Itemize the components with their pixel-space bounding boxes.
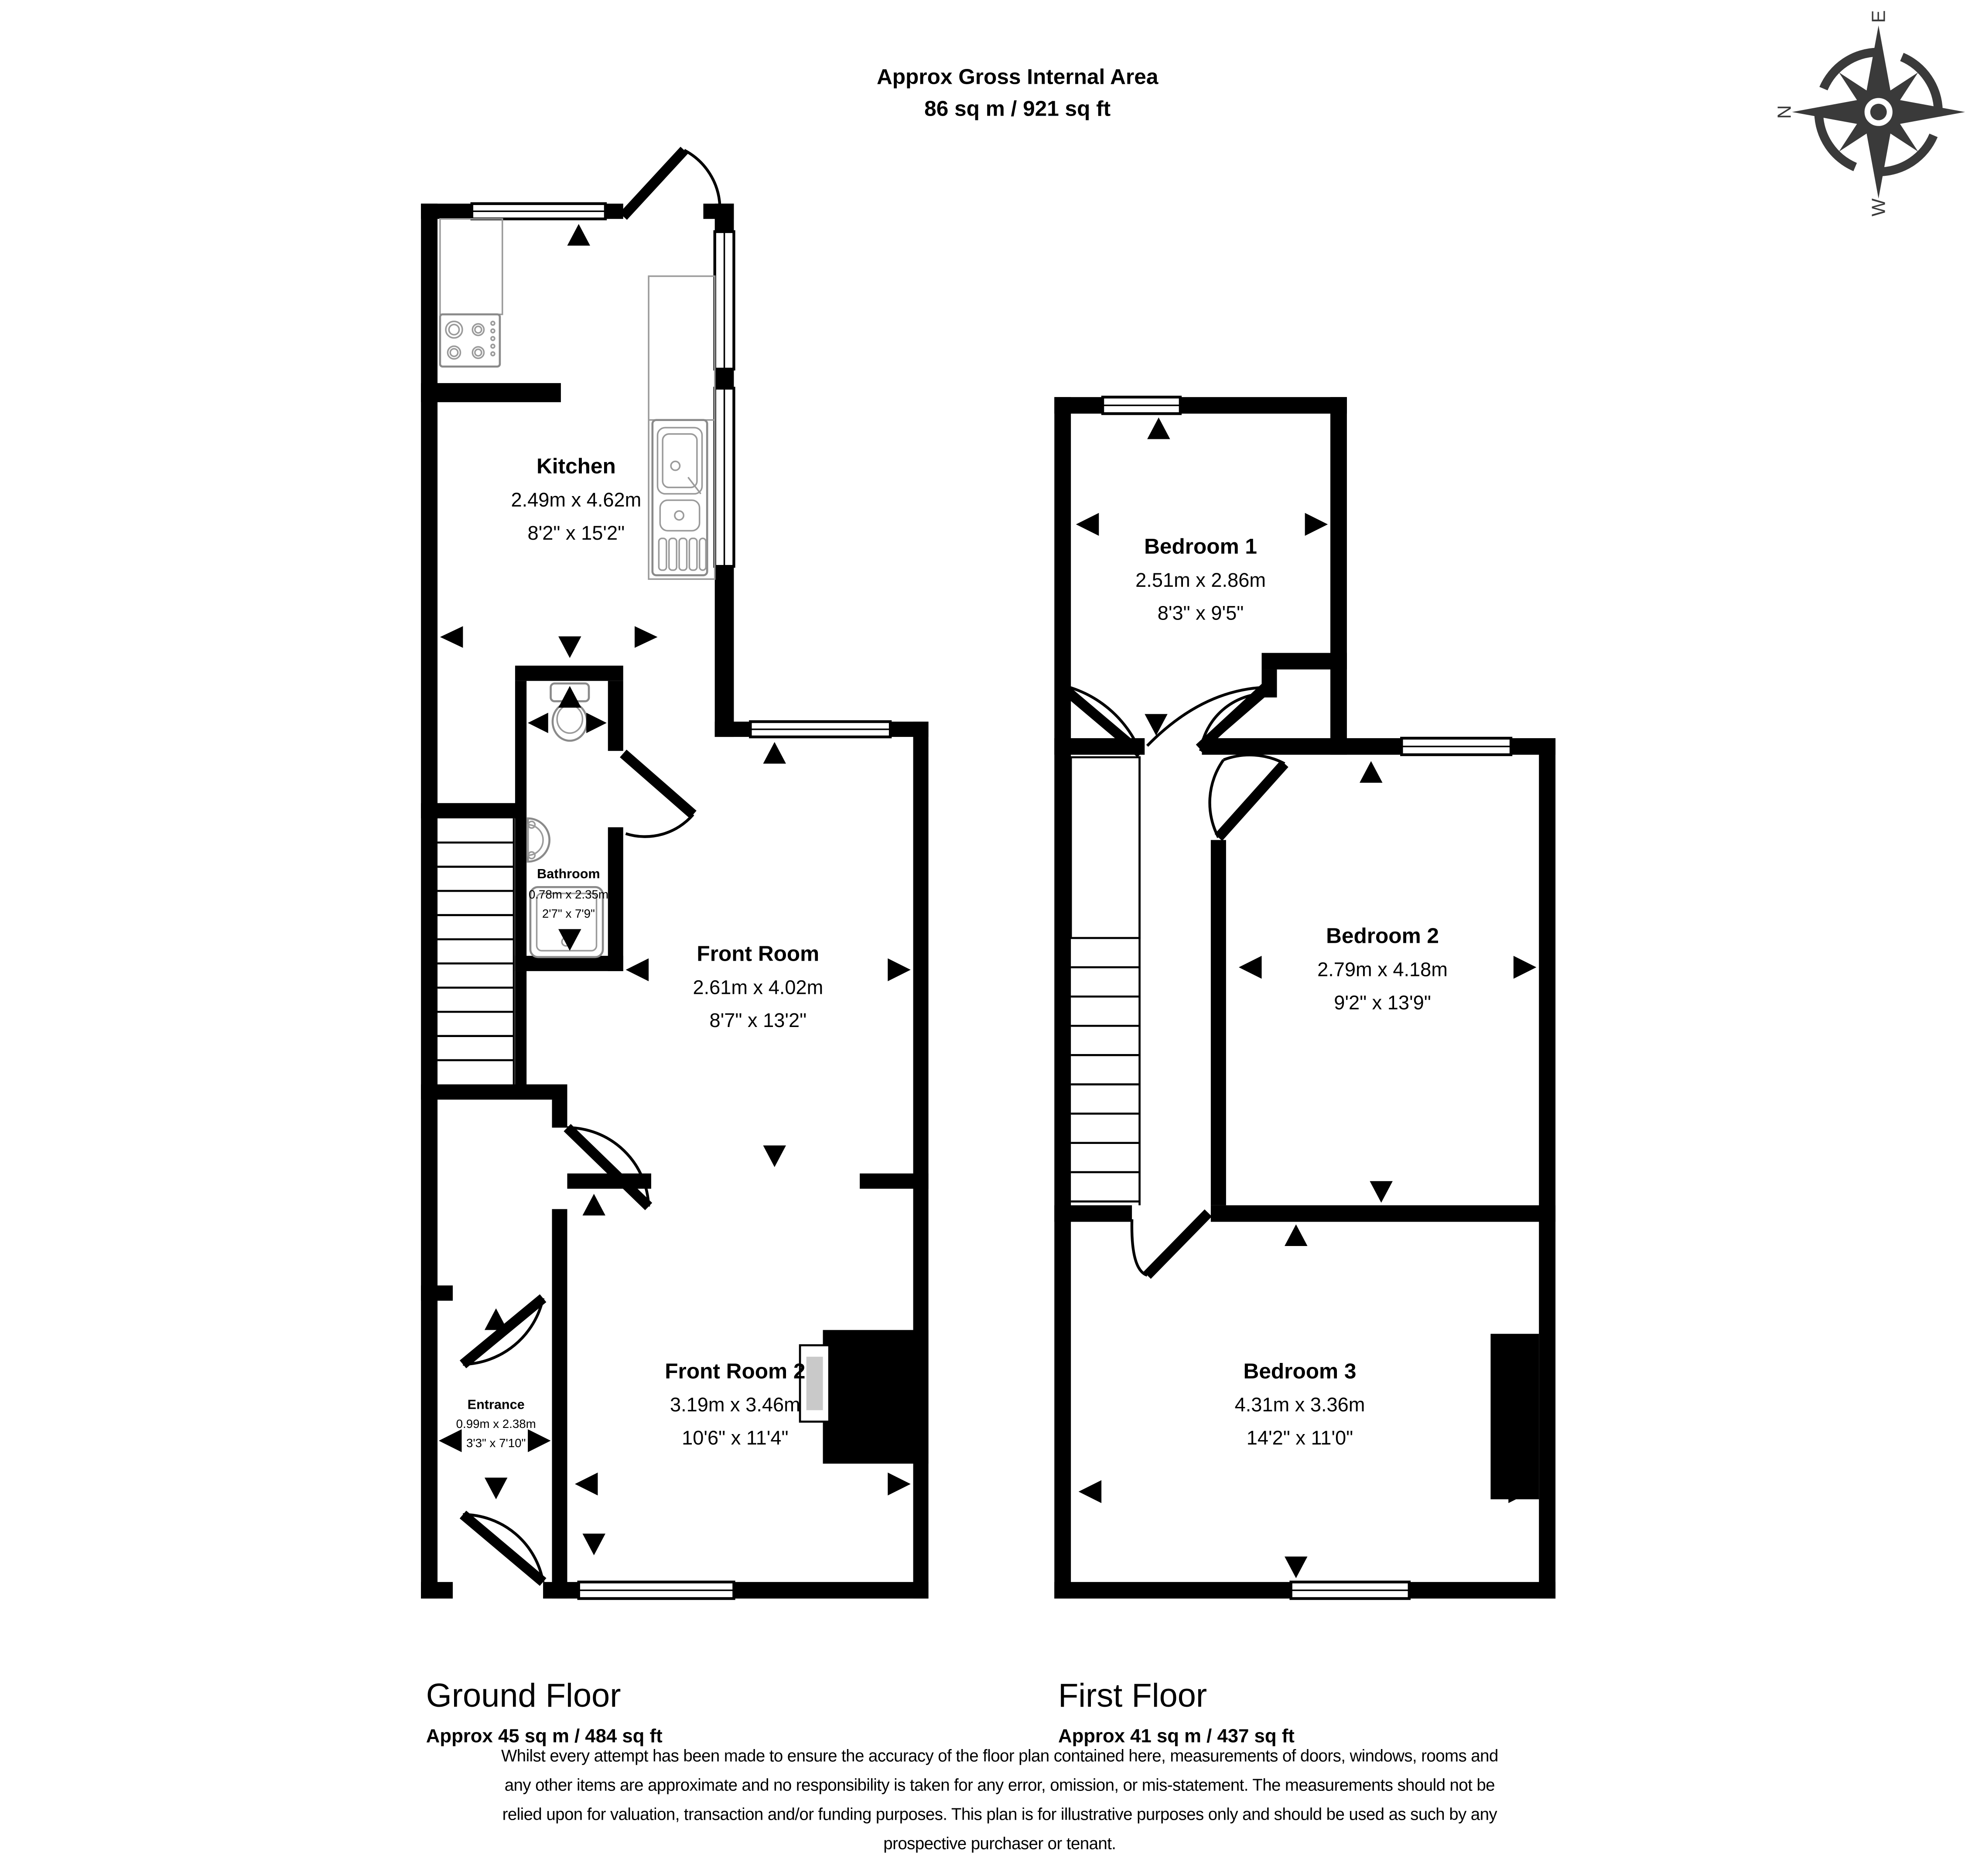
svg-text:prospective purchaser or tenan: prospective purchaser or tenant.: [883, 1835, 1116, 1853]
hob-icon: [440, 315, 500, 367]
svg-text:Entrance: Entrance: [468, 1397, 525, 1412]
bedroom-3-door: [1132, 1213, 1208, 1275]
room-label-entrance: Entrance 0.99m x 2.38m 3'3" x 7'10": [456, 1397, 536, 1450]
page-subtitle: 86 sq m / 921 sq ft: [924, 96, 1111, 120]
svg-text:4.31m x 3.36m: 4.31m x 3.36m: [1235, 1393, 1365, 1416]
svg-text:8'3" x 9'5": 8'3" x 9'5": [1158, 602, 1244, 624]
room-label-bedroom-3: Bedroom 3 4.31m x 3.36m 14'2" x 11'0": [1235, 1359, 1365, 1449]
compass-south-label: S: [1962, 106, 1965, 118]
svg-text:3'3" x 7'10": 3'3" x 7'10": [466, 1436, 526, 1450]
svg-text:First Floor: First Floor: [1058, 1677, 1207, 1714]
svg-text:2.79m x 4.18m: 2.79m x 4.18m: [1317, 959, 1448, 981]
svg-text:8'2" x 15'2": 8'2" x 15'2": [528, 522, 625, 544]
svg-text:10'6" x 11'4": 10'6" x 11'4": [682, 1427, 788, 1449]
hall-to-front-room-door: [567, 1128, 649, 1207]
bedroom-2-door: [1210, 755, 1285, 837]
page-title: Approx Gross Internal Area: [877, 65, 1158, 89]
kitchen-top-window: [472, 204, 605, 219]
room-label-bedroom-1: Bedroom 1 2.51m x 2.86m 8'3" x 9'5": [1135, 534, 1266, 624]
ground-floor-staircase: [437, 818, 514, 1085]
room-label-bedroom-2: Bedroom 2 2.79m x 4.18m 9'2" x 13'9": [1317, 924, 1448, 1014]
bedroom-2-window: [1401, 738, 1511, 755]
chimney-breast: [800, 1330, 929, 1464]
compass-icon: E N S W: [1774, 10, 1965, 216]
svg-text:Front Room: Front Room: [697, 941, 819, 965]
compass-east-label: E: [1868, 10, 1889, 23]
svg-text:Ground Floor: Ground Floor: [426, 1677, 621, 1714]
svg-text:2.61m x 4.02m: 2.61m x 4.02m: [693, 976, 823, 998]
room-label-kitchen: Kitchen 2.49m x 4.62m 8'2" x 15'2": [511, 454, 641, 544]
sink-icon: [653, 420, 707, 575]
ground-floor-plan: Kitchen 2.49m x 4.62m 8'2" x 15'2" Bathr…: [421, 150, 928, 1599]
room-label-front-room: Front Room 2.61m x 4.02m 8'7" x 13'2": [693, 941, 823, 1031]
kitchen-side-window-upper: [715, 232, 734, 369]
bedroom-3-window: [1291, 1582, 1409, 1599]
svg-text:0.78m x 2.35m: 0.78m x 2.35m: [529, 888, 608, 901]
first-floor-walls: [1054, 397, 1555, 1599]
kitchen-side-window-lower: [715, 388, 734, 566]
front-door: [463, 1515, 543, 1582]
svg-text:Bedroom 1: Bedroom 1: [1144, 534, 1257, 558]
entrance-inner-door: [463, 1298, 543, 1365]
compass-north-label: N: [1774, 105, 1795, 119]
svg-text:Front Room 2: Front Room 2: [665, 1359, 805, 1383]
svg-text:Approx 45 sq m / 484 sq ft: Approx 45 sq m / 484 sq ft: [426, 1725, 663, 1747]
svg-text:any other items are approximat: any other items are approximate and no r…: [505, 1776, 1495, 1795]
svg-text:Bathroom: Bathroom: [537, 866, 600, 881]
svg-text:2.51m x 2.86m: 2.51m x 2.86m: [1135, 569, 1266, 591]
basin-icon: [528, 818, 550, 862]
bedroom-1-window: [1103, 397, 1180, 414]
front-room-window: [750, 722, 890, 737]
svg-text:0.99m x 2.38m: 0.99m x 2.38m: [456, 1417, 536, 1431]
first-floor-plan: Bedroom 1 2.51m x 2.86m 8'3" x 9'5" Bedr…: [1054, 397, 1555, 1599]
disclaimer: Whilst every attempt has been made to en…: [501, 1746, 1498, 1853]
front-room-2-window: [579, 1582, 734, 1599]
floor-plan-canvas: Approx Gross Internal Area 86 sq m / 921…: [0, 0, 1965, 1876]
svg-text:Approx 41 sq m / 437 sq ft: Approx 41 sq m / 437 sq ft: [1058, 1725, 1295, 1747]
room-label-front-room-2: Front Room 2 3.19m x 3.46m 10'6" x 11'4": [665, 1359, 805, 1449]
first-floor-staircase: [1071, 757, 1139, 1205]
svg-text:9'2" x 13'9": 9'2" x 13'9": [1334, 991, 1431, 1013]
svg-text:2.49m x 4.62m: 2.49m x 4.62m: [511, 489, 641, 511]
floor-plan-page: Approx Gross Internal Area 86 sq m / 921…: [0, 0, 1965, 1876]
svg-text:Kitchen: Kitchen: [537, 454, 616, 478]
svg-text:14'2" x 11'0": 14'2" x 11'0": [1247, 1427, 1353, 1449]
svg-text:Whilst every attempt has been: Whilst every attempt has been made to en…: [501, 1746, 1498, 1765]
first-floor-caption: First Floor Approx 41 sq m / 437 sq ft: [1058, 1677, 1295, 1747]
svg-text:Bedroom 2: Bedroom 2: [1326, 924, 1439, 948]
svg-text:3.19m x 3.46m: 3.19m x 3.46m: [670, 1393, 800, 1416]
svg-text:8'7" x 13'2": 8'7" x 13'2": [710, 1009, 807, 1031]
svg-text:Bedroom 3: Bedroom 3: [1244, 1359, 1357, 1383]
svg-text:2'7" x 7'9": 2'7" x 7'9": [542, 907, 595, 920]
compass-west-label: W: [1868, 198, 1889, 216]
ground-floor-caption: Ground Floor Approx 45 sq m / 484 sq ft: [426, 1677, 663, 1747]
svg-text:relied upon for valuation, tra: relied upon for valuation, transaction a…: [502, 1805, 1498, 1824]
bathroom-door: [623, 753, 693, 837]
